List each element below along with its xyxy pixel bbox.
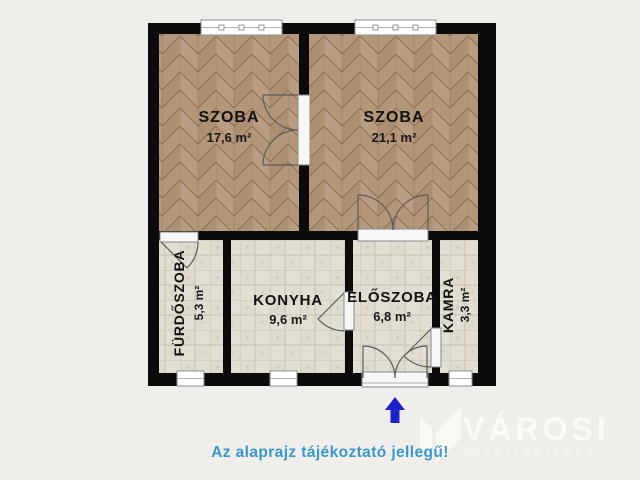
window-top-right: [355, 20, 436, 35]
room-area-eloszoba: 6,8 m²: [373, 309, 411, 324]
agency-logo-title: VÁROSI: [463, 411, 610, 447]
room-label-kamra: KAMRA: [440, 277, 456, 333]
room-area-kamra: 3,3 m²: [458, 288, 472, 323]
window-top-left: [201, 20, 282, 35]
window-bottom-kamra: [449, 371, 472, 386]
room-floor-eloszoba: [353, 240, 432, 373]
room-area-furdoszoba: 5,3 m²: [192, 286, 206, 321]
room-area-szoba-right: 21,1 m²: [372, 130, 417, 145]
room-area-konyha: 9,6 m²: [269, 312, 307, 327]
room-label-szoba-left: SZOBA: [199, 109, 260, 126]
agency-logo-subtitle: INGATLANIRODA: [465, 448, 598, 458]
window-bottom-furdoszoba: [177, 371, 204, 386]
disclaimer-text: Az alaprajz tájékoztató jellegű!: [211, 444, 449, 461]
room-label-konyha: KONYHA: [253, 292, 323, 309]
room-floor-furdoszoba: [159, 240, 223, 373]
window-bottom-konyha: [270, 371, 297, 386]
floorplan-canvas: VÁROSI INGATLANIRODA: [0, 0, 640, 480]
room-area-szoba-left: 17,6 m²: [207, 130, 252, 145]
floorplan-svg: VÁROSI INGATLANIRODA: [0, 0, 640, 480]
room-label-szoba-right: SZOBA: [364, 109, 425, 126]
room-label-eloszoba: ELŐSZOBA: [347, 288, 437, 306]
room-label-furdoszoba: FÜRDŐSZOBA: [170, 250, 187, 357]
